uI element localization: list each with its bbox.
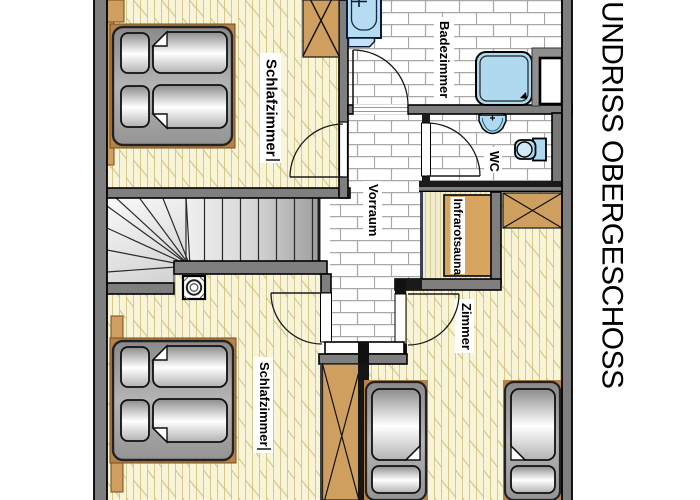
- svg-text:Vorraum: Vorraum: [366, 184, 381, 237]
- svg-text:Schlafzimmer: Schlafzimmer: [257, 362, 272, 447]
- svg-text:WC: WC: [487, 151, 501, 172]
- svg-text:UNDRISS OBERGESCHOSS: UNDRISS OBERGESCHOSS: [596, 1, 629, 388]
- svg-text:Schlafzimmer: Schlafzimmer: [263, 59, 280, 157]
- svg-text:Zimmer: Zimmer: [459, 303, 474, 350]
- svg-text:Badezimmer: Badezimmer: [437, 21, 452, 98]
- svg-text:Infrarotsauna: Infrarotsauna: [451, 199, 465, 276]
